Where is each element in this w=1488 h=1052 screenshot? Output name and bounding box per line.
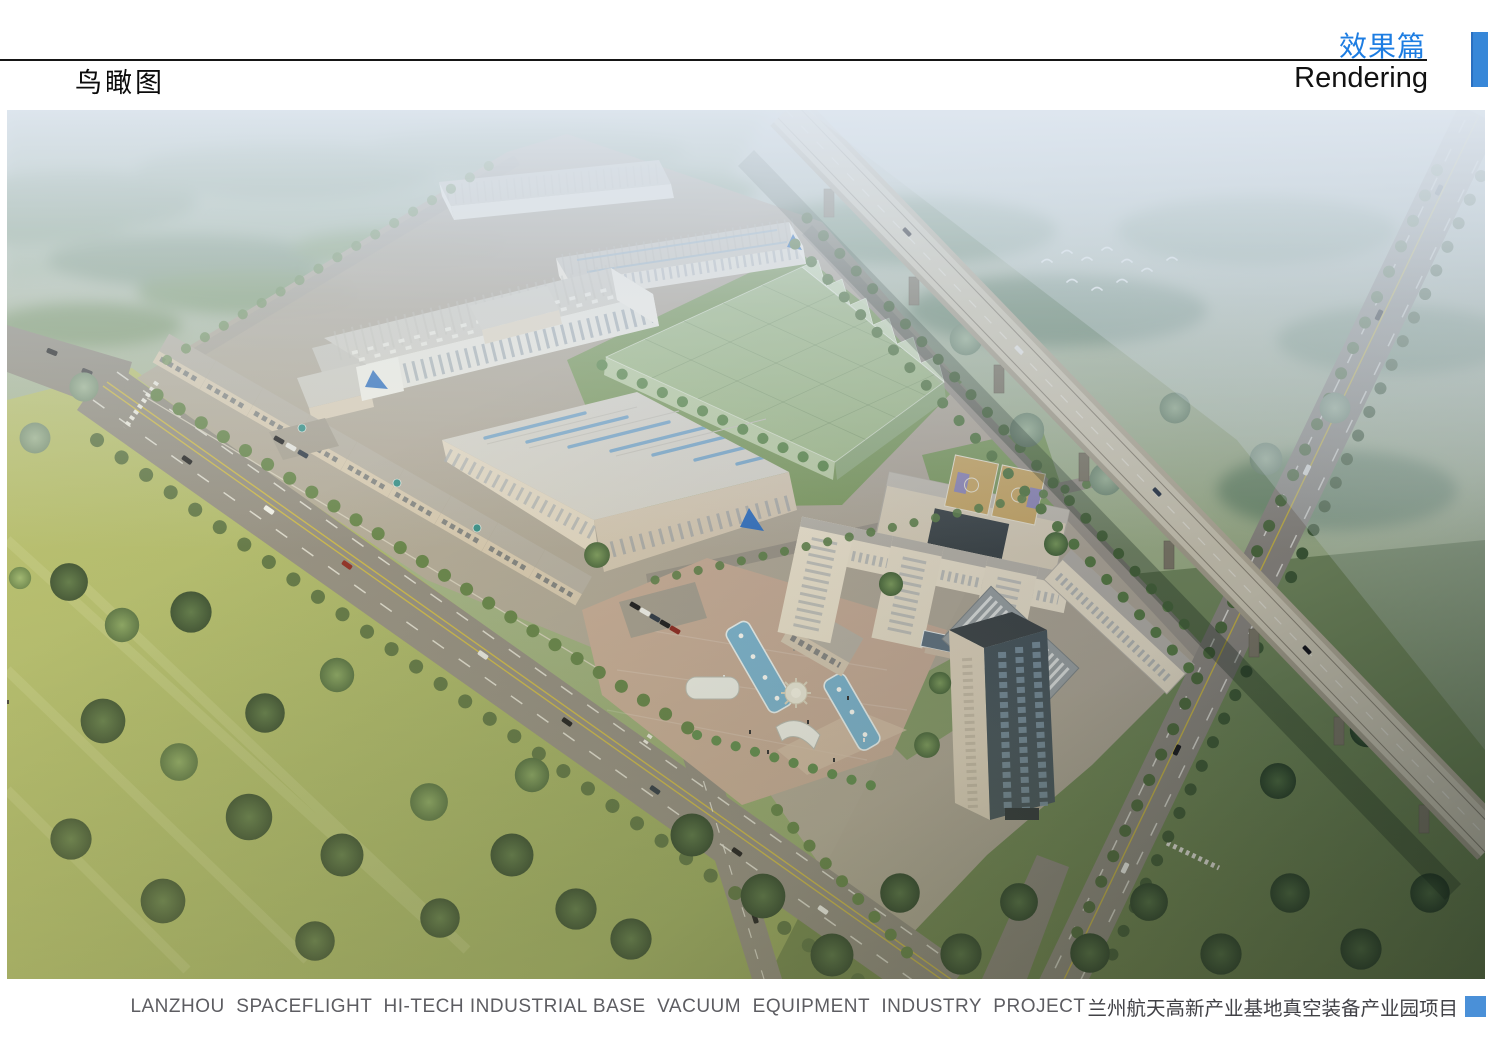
header-accent-bar xyxy=(1471,32,1488,87)
section-title-en: Rendering xyxy=(1294,62,1428,95)
caption-english: LANZHOU SPACEFLIGHT HI-TECH INDUSTRIAL B… xyxy=(130,996,1085,1018)
footer-blue-marker xyxy=(1465,996,1486,1017)
presentation-page: 效果篇 Rendering 鸟瞰图 xyxy=(0,0,1488,1052)
haze-overlay xyxy=(7,110,1485,550)
page-title: 鸟瞰图 xyxy=(75,61,165,100)
header-rule xyxy=(0,59,1427,61)
aerial-rendering-image xyxy=(7,110,1485,979)
footer-caption: LANZHOU SPACEFLIGHT HI-TECH INDUSTRIAL B… xyxy=(130,992,1486,1021)
caption-chinese: 兰州航天高新产业基地真空装备产业园项目 xyxy=(1087,992,1458,1021)
